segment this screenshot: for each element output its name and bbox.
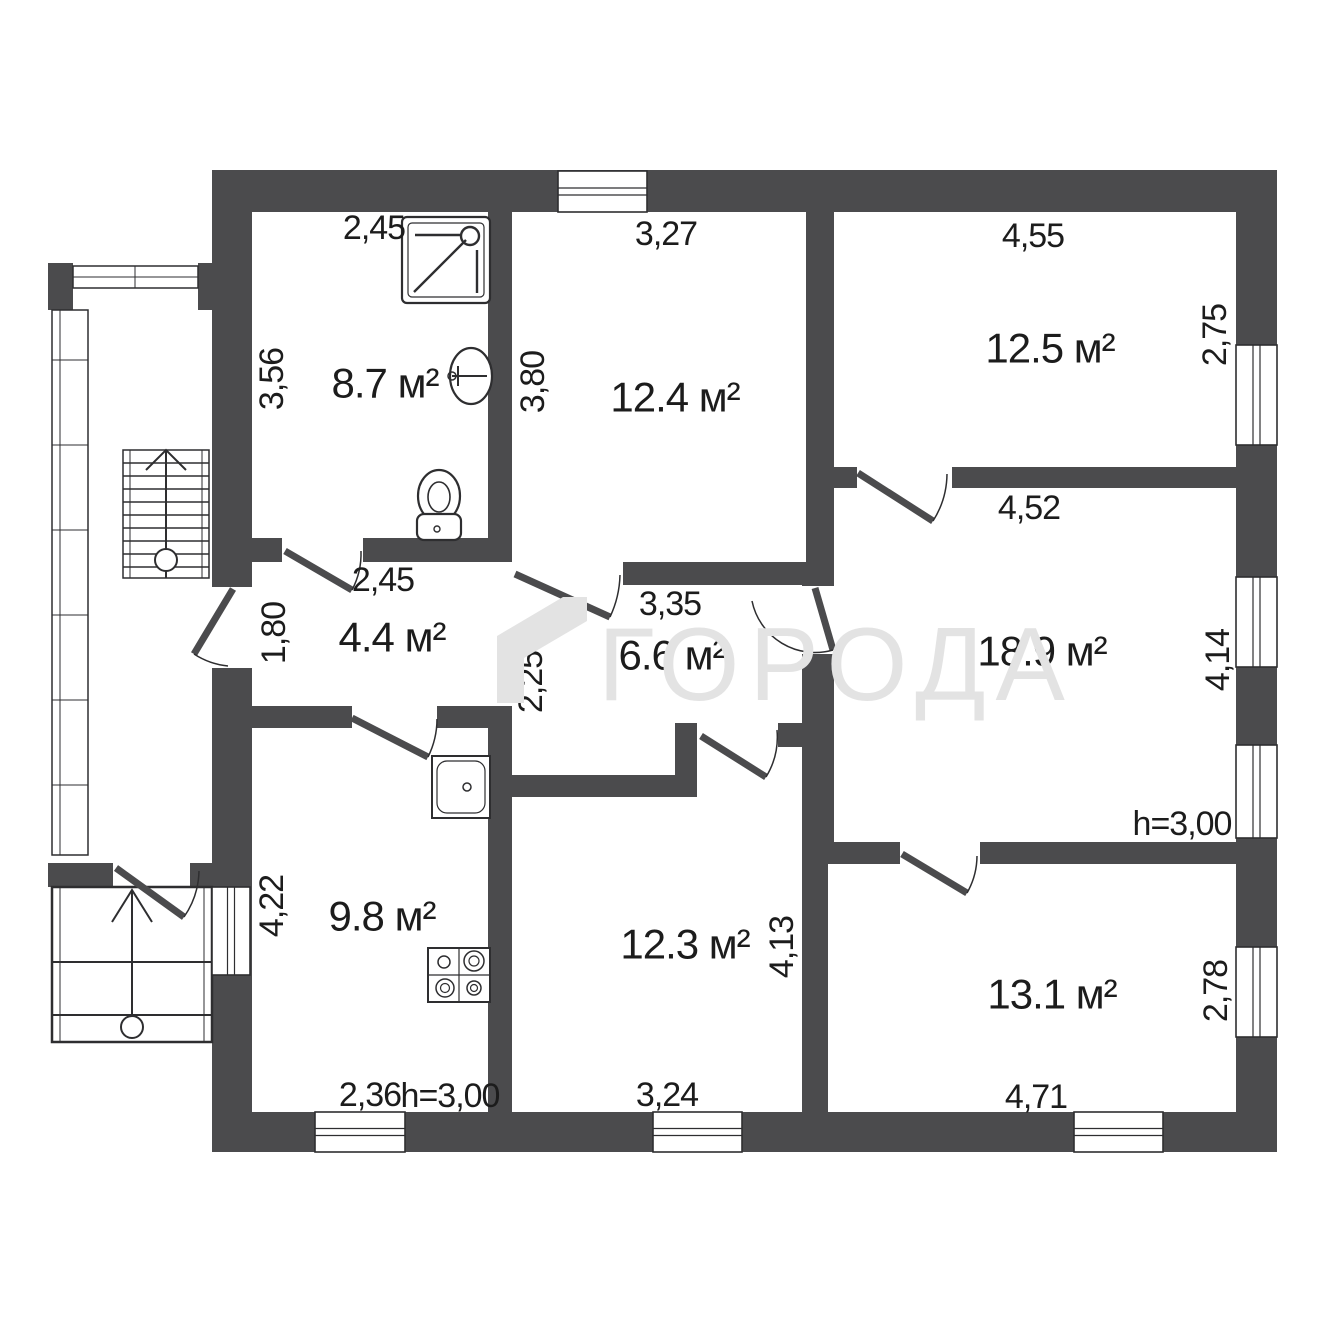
dimension-label: 2,45 [352,561,414,599]
dimension-label: 2,75 [1196,304,1234,366]
washbasin-icon [448,348,492,404]
dimension-label: 3,56 [253,348,291,410]
room-area-label: 8.7 м² [332,360,440,407]
window [315,1112,405,1152]
wall-segment [806,212,834,562]
watermark-text: ГОРОДА [598,607,1075,723]
window [1074,1112,1163,1152]
floorplan-page: 8.7 м²12.4 м²12.5 м²4.4 м²6.6 м²18.9 м²9… [0,0,1326,1326]
dimension-label: 2,78 [1197,960,1235,1022]
kitchen-sink-icon [432,756,490,818]
window [1236,577,1277,667]
fixtures [402,217,492,1002]
dimension-label: 4,71 [1005,1078,1067,1116]
toilet-icon [417,470,461,540]
wall-segment [488,706,512,1112]
room-area-label: 13.1 м² [987,971,1117,1018]
wall-segment [802,842,1236,864]
dimension-label: 4,52 [998,489,1060,527]
window [653,1112,742,1152]
dimension-label: h=3,00 [1133,805,1232,843]
door-opening [212,587,252,668]
room-area-label: 12.5 м² [985,325,1115,372]
dimension-label: 4,14 [1199,629,1237,691]
window [212,887,250,975]
wall-segment [802,864,828,1112]
dimension-label: 3,80 [514,351,552,413]
room-area-label: 9.8 м² [329,893,437,940]
dimension-label: 1,80 [255,602,293,664]
wall-segment [198,263,212,310]
dimension-label: 4,55 [1002,217,1064,255]
window [1236,947,1277,1037]
room-area-label: 12.4 м² [610,374,740,421]
wall-segment [488,212,512,562]
wall-segment [512,775,675,797]
floorplan-svg: 8.7 м²12.4 м²12.5 м²4.4 м²6.6 м²18.9 м²9… [0,0,1326,1326]
staircase [123,450,209,578]
dimension-label: 2,45 [343,209,405,247]
wall-segment [675,723,697,797]
window [1236,745,1277,838]
window [1236,345,1277,445]
room-area-label: 4.4 м² [339,614,447,661]
dimension-label: 4,22 [253,875,291,937]
wall-segment [48,263,73,310]
watermark: ГОРОДА [497,597,1075,723]
stove-icon [428,948,490,1002]
window [558,171,647,212]
dimension-label: 3,24 [636,1076,698,1114]
wall-segment [212,170,1277,212]
dimension-label: 2,36 [339,1076,401,1114]
room-area-label: 12.3 м² [620,921,750,968]
glazing-left [52,310,88,855]
shower-icon [402,217,490,303]
dimension-label: 4,13 [763,916,801,978]
dimension-label: 3,27 [635,215,697,253]
dimension-label: h=3,00 [401,1077,500,1115]
